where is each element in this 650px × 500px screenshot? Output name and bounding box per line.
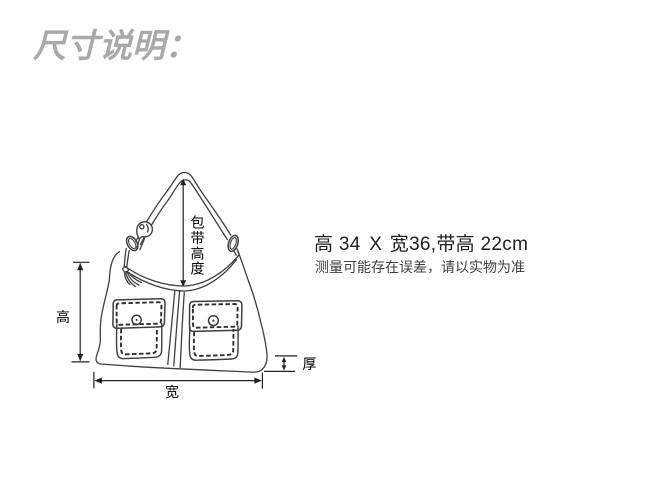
svg-text:包: 包 <box>191 215 205 231</box>
svg-text:厚: 厚 <box>303 356 317 372</box>
svg-text:高: 高 <box>191 245 205 261</box>
svg-text:高: 高 <box>56 309 70 325</box>
svg-text:度: 度 <box>191 261 205 277</box>
svg-text:宽: 宽 <box>165 384 179 400</box>
svg-text:带: 带 <box>191 230 205 246</box>
